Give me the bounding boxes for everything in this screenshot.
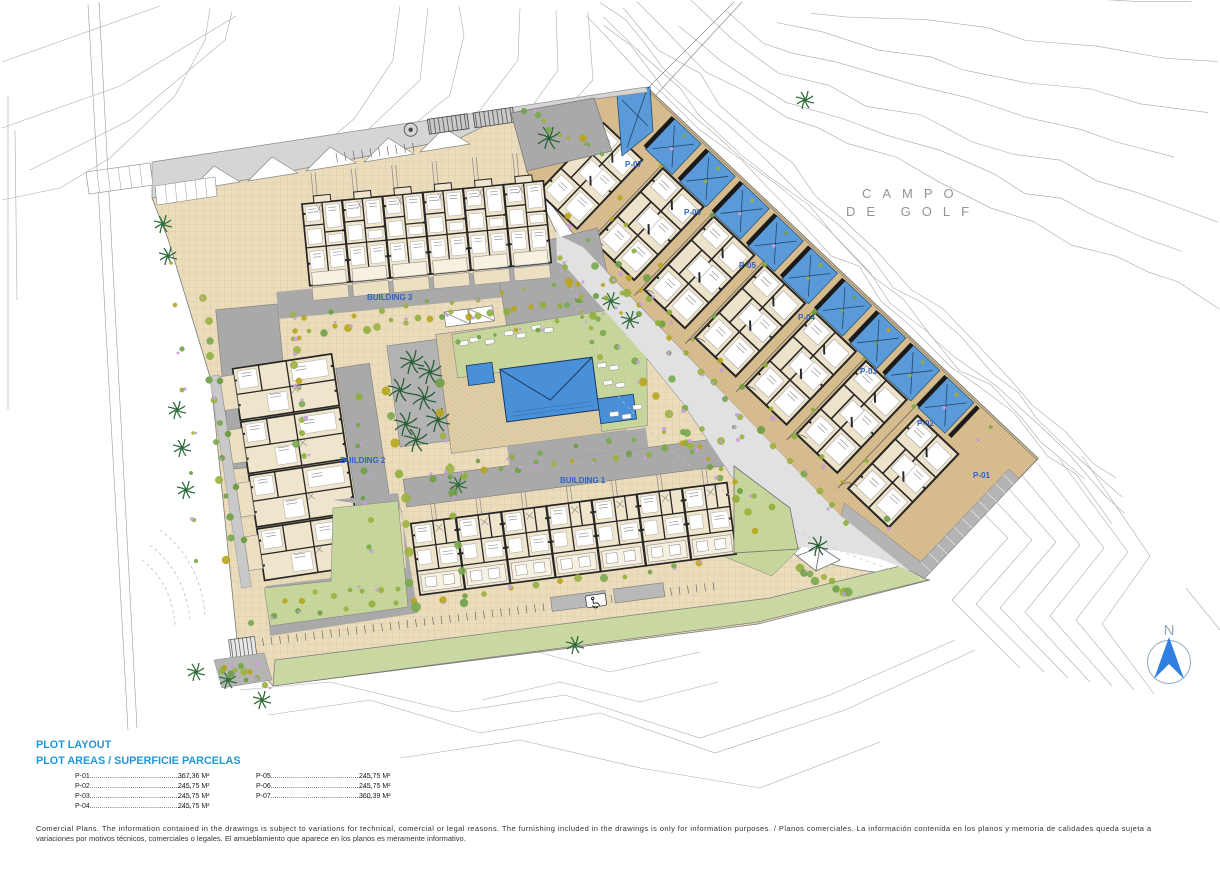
svg-text:P-01..........................: P-01....................................… [75, 773, 191, 780]
svg-text:BUILDING 3: BUILDING 3 [367, 293, 413, 302]
svg-text:variaciones por motivos técnic: variaciones por motivos técnicos, comerc… [36, 834, 466, 843]
svg-text:BUILDING 1: BUILDING 1 [560, 476, 606, 485]
svg-text:P-05..........................: P-05....................................… [256, 773, 372, 780]
svg-text:P-03: P-03 [860, 367, 877, 376]
svg-text:PLOT LAYOUT: PLOT LAYOUT [36, 739, 112, 751]
svg-text:245,75 M²: 245,75 M² [178, 793, 210, 800]
svg-text:P-03..........................: P-03....................................… [75, 793, 191, 800]
svg-text:360,39 M²: 360,39 M² [359, 793, 391, 800]
svg-text:P-05: P-05 [739, 261, 756, 270]
svg-text:P-01: P-01 [973, 471, 990, 480]
svg-text:BUILDING 2: BUILDING 2 [340, 456, 386, 465]
svg-text:P-07: P-07 [625, 160, 642, 169]
svg-text:P-02: P-02 [917, 419, 934, 428]
svg-text:P-04..........................: P-04....................................… [75, 803, 191, 810]
svg-text:DE GOLF: DE GOLF [846, 204, 980, 219]
svg-text:P-07..........................: P-07....................................… [256, 793, 372, 800]
svg-text:Comercial Plans. The informati: Comercial Plans. The information contain… [36, 824, 1152, 833]
svg-text:P-02..........................: P-02....................................… [75, 783, 191, 790]
svg-text:P-06: P-06 [684, 208, 701, 217]
svg-text:P-06..........................: P-06....................................… [256, 783, 372, 790]
svg-text:245,75 M²: 245,75 M² [359, 783, 391, 790]
svg-text:N: N [1164, 622, 1175, 639]
svg-text:367,36 M²: 367,36 M² [178, 773, 210, 780]
svg-text:245,75 M²: 245,75 M² [359, 773, 391, 780]
svg-text:CAMPO: CAMPO [862, 186, 965, 201]
svg-text:245,75 M²: 245,75 M² [178, 783, 210, 790]
svg-text:245,75 M²: 245,75 M² [178, 803, 210, 810]
svg-text:P-04: P-04 [798, 313, 815, 322]
svg-text:PLOT AREAS / SUPERFICIE PARCEL: PLOT AREAS / SUPERFICIE PARCELAS [36, 755, 241, 767]
